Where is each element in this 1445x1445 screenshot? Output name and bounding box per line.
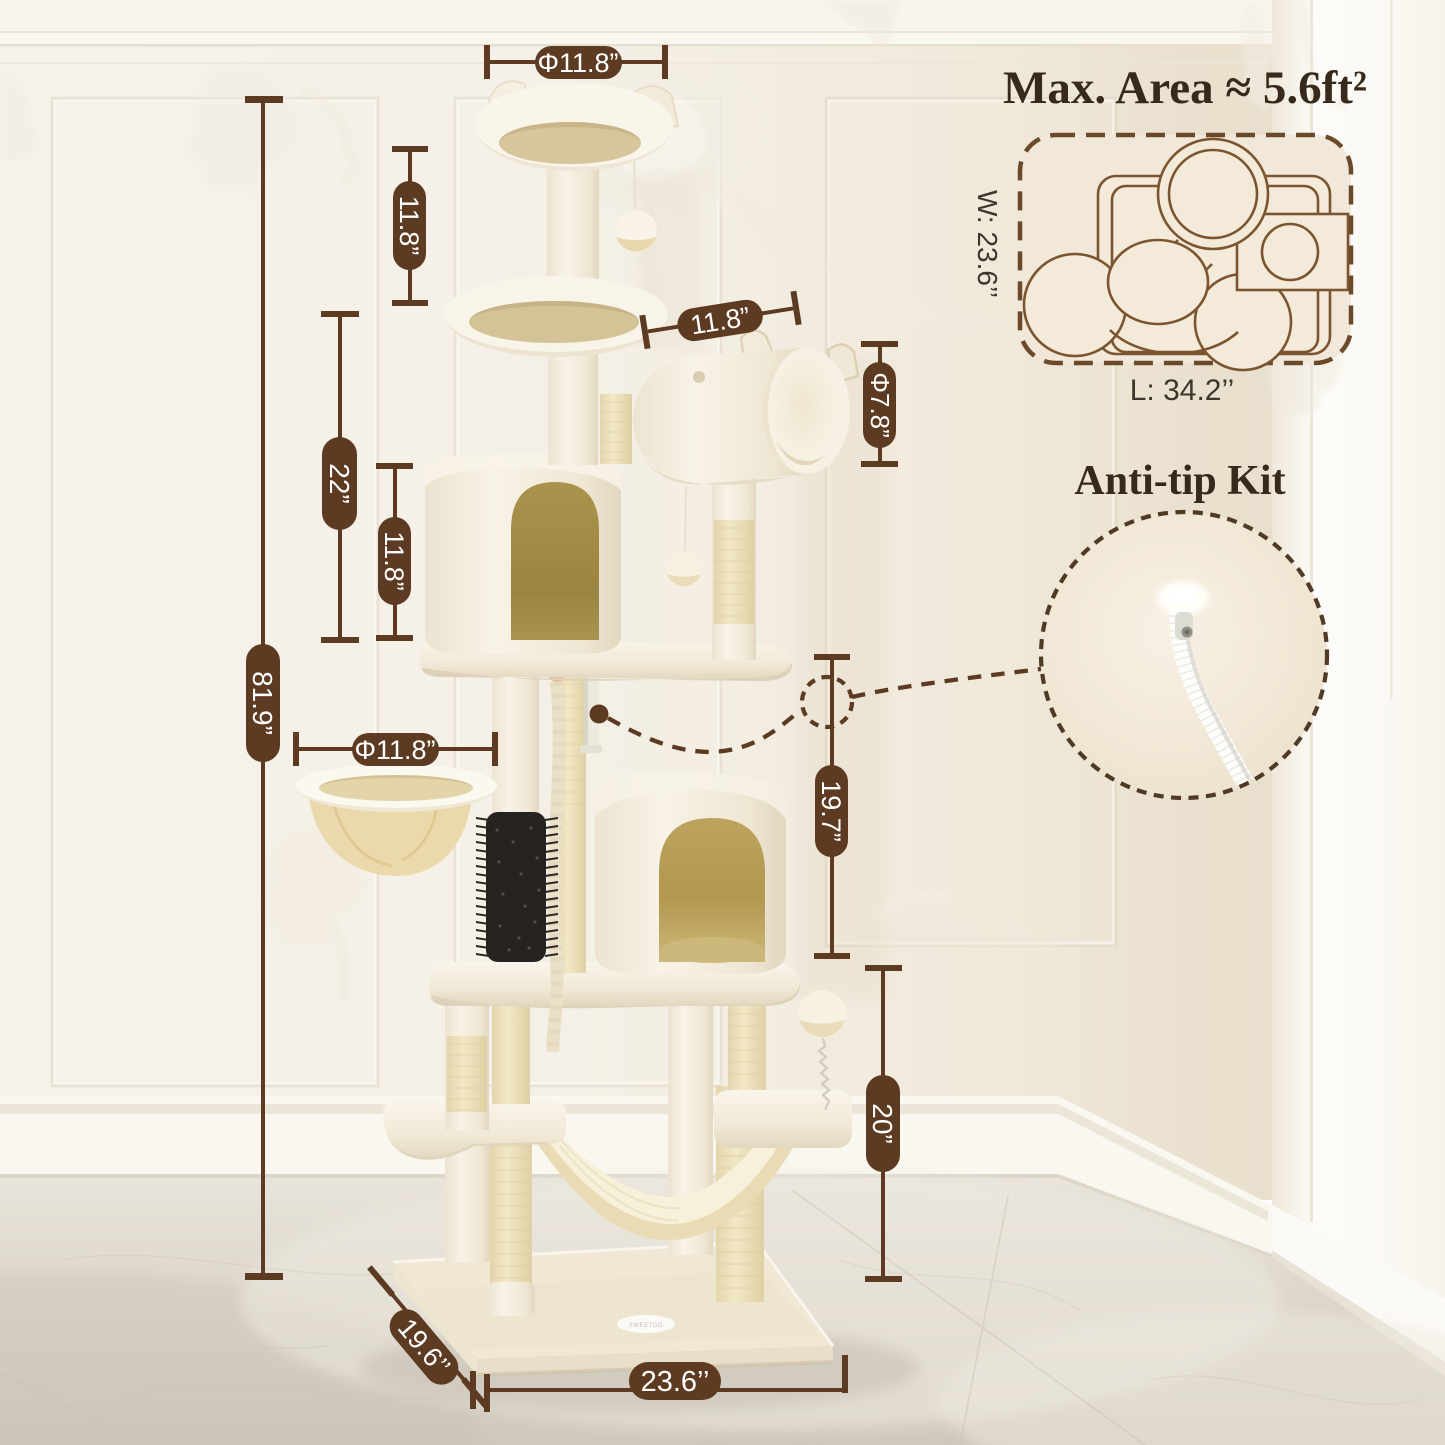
svg-text:11.8”: 11.8” <box>394 196 424 256</box>
svg-text:81.9”: 81.9” <box>247 671 278 735</box>
svg-text:11.8”: 11.8” <box>379 531 409 591</box>
svg-text:Φ11.8”: Φ11.8” <box>354 735 435 765</box>
svg-text:19.7”: 19.7” <box>816 780 846 842</box>
svg-text:Φ7.8”: Φ7.8” <box>865 372 895 438</box>
svg-text:Max. Area ≈ 5.6ft²: Max. Area ≈ 5.6ft² <box>1003 62 1367 114</box>
svg-text:W: 23.6’’: W: 23.6’’ <box>972 190 1003 298</box>
svg-text:23.6’’: 23.6’’ <box>641 1366 710 1398</box>
svg-text:Φ11.8”: Φ11.8” <box>537 48 618 78</box>
svg-text:20”: 20” <box>867 1103 898 1143</box>
svg-text:L: 34.2’’: L: 34.2’’ <box>1130 374 1235 407</box>
svg-text:SWEETGO: SWEETGO <box>629 1323 663 1329</box>
svg-text:22”: 22” <box>324 463 355 503</box>
svg-text:Anti-tip Kit: Anti-tip Kit <box>1074 458 1285 504</box>
